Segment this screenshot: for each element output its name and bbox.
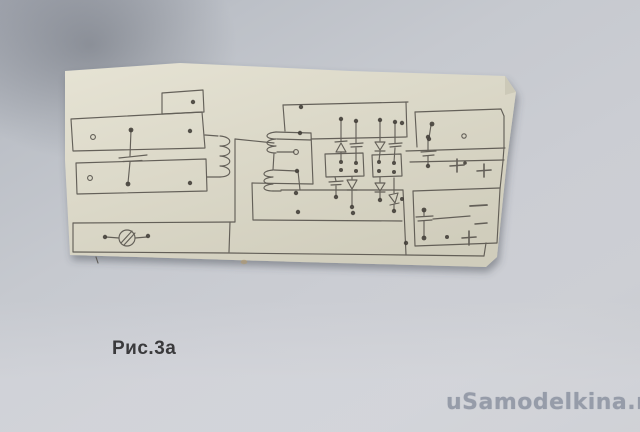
dash-mark bbox=[475, 223, 487, 224]
paper-schematic-photo bbox=[0, 0, 640, 432]
photo-background: Рис.3а uSamodelkina.ru bbox=[0, 0, 640, 432]
figure-caption: Рис.3а bbox=[112, 338, 176, 360]
watermark: uSamodelkina.ru bbox=[446, 390, 640, 416]
paper-stain bbox=[241, 260, 248, 264]
minus-symbol bbox=[470, 205, 487, 206]
paper-corner-fold bbox=[505, 76, 516, 95]
